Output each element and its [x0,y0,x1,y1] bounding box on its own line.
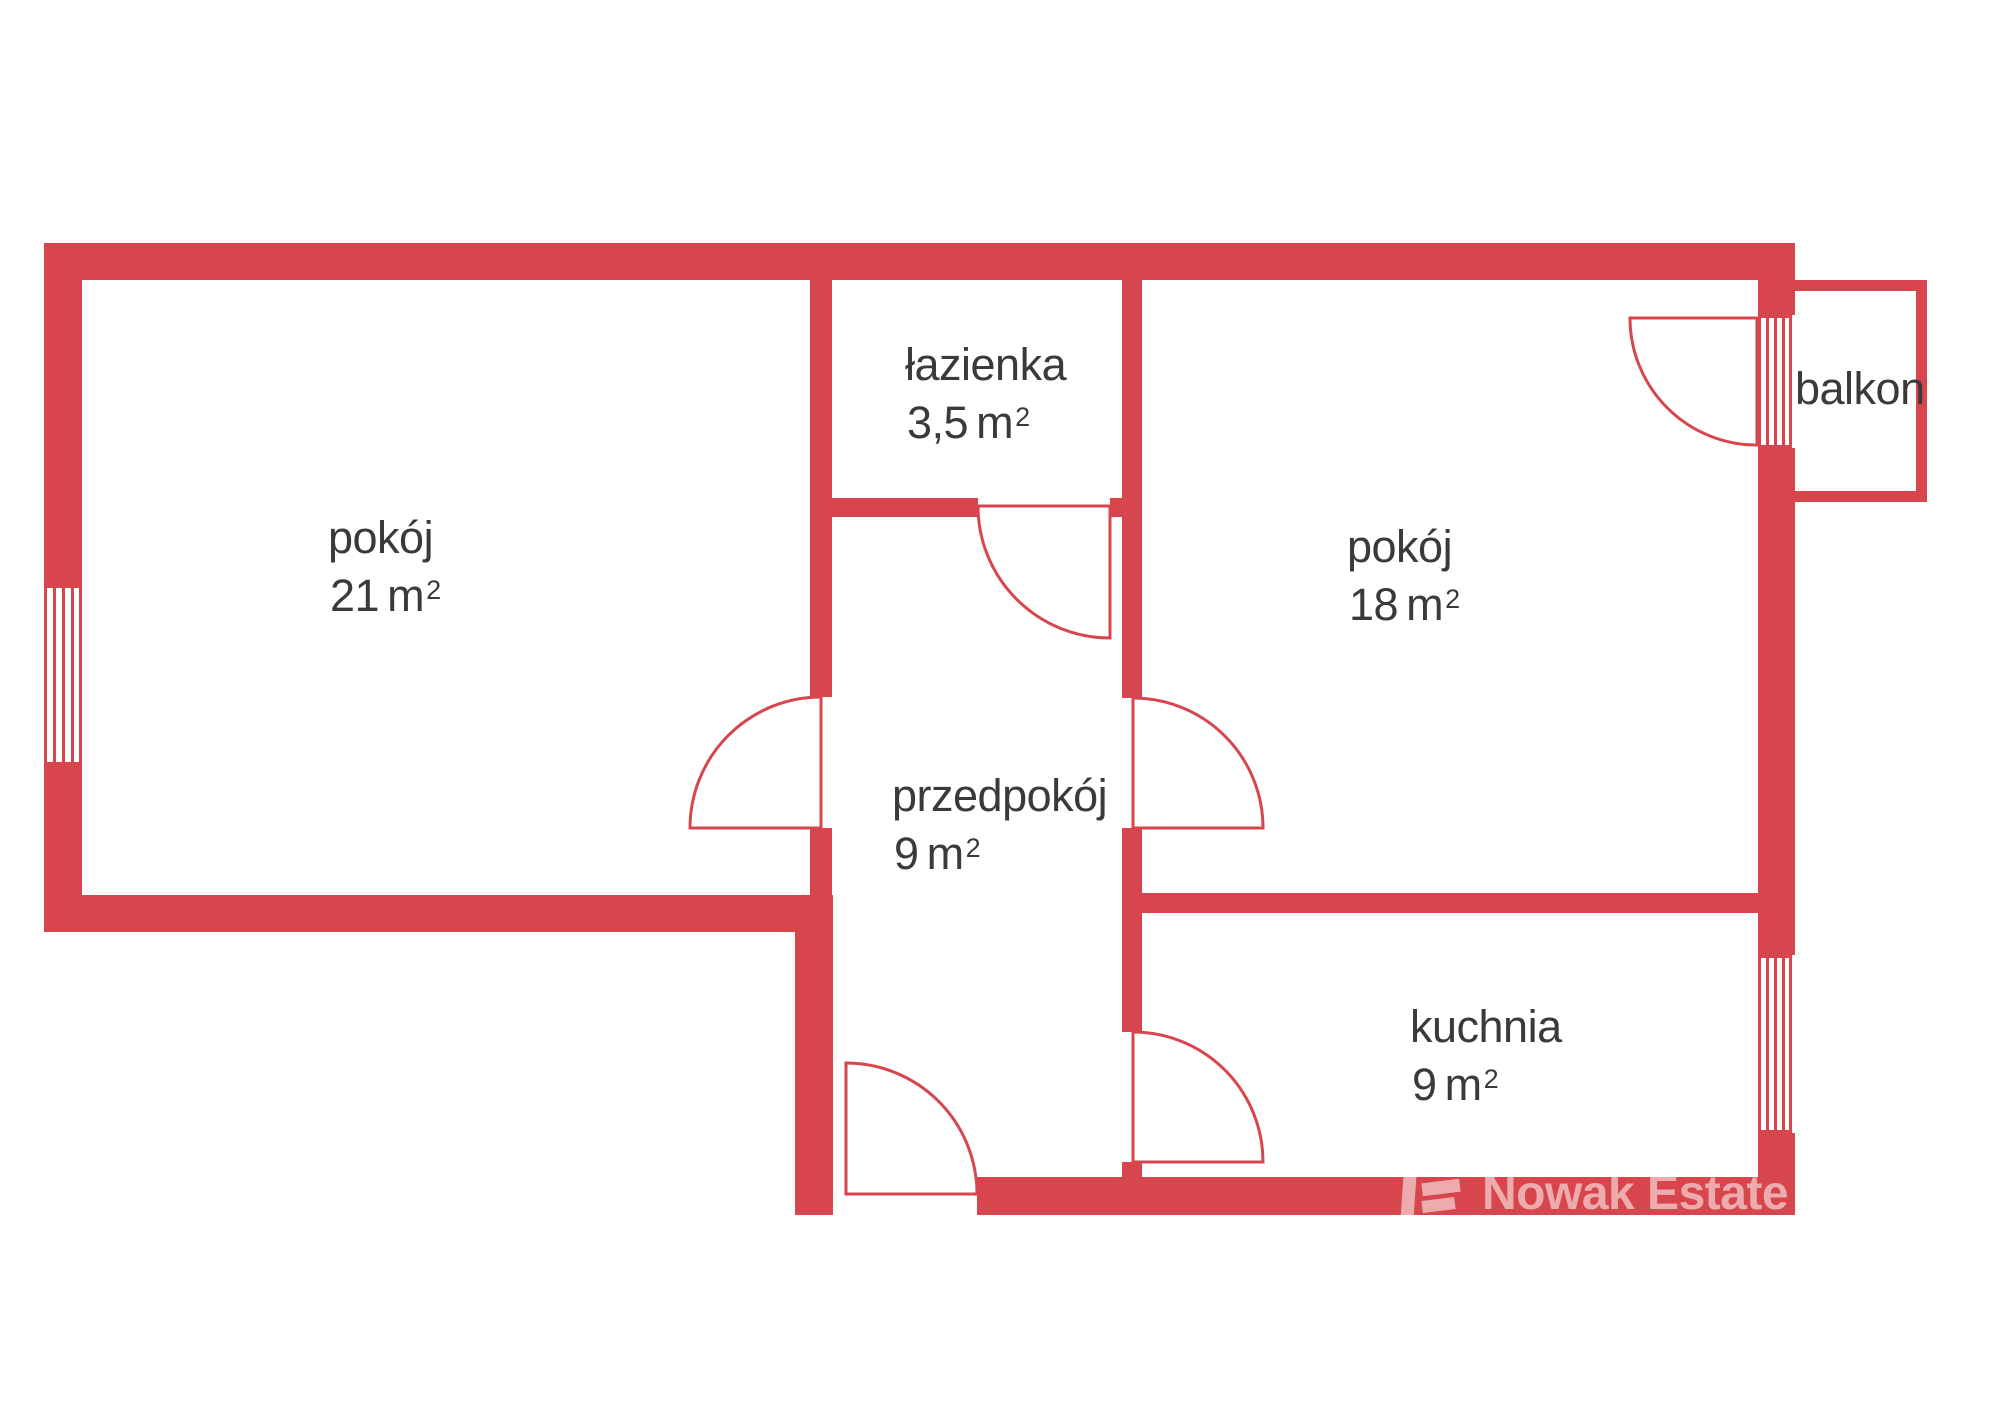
window-kitchen [1758,955,1792,1133]
room-name: kuchnia [1410,998,1562,1056]
window-balcony-door [1758,315,1792,448]
wall-kitchen-top [1142,893,1793,913]
wall-right-upper [1758,243,1795,315]
nowak-estate-logo-icon [1400,1172,1464,1218]
floor-plan: pokój 21m2 łazienka 3,5m2 pokój 18m2 prz… [0,0,2000,1414]
room-label-kuchnia: kuchnia 9m2 [1410,998,1562,1120]
wall-left-upper [44,280,82,585]
door-balcony [1630,318,1757,445]
door-room18 [1133,698,1263,828]
room-area: 3,5m2 [905,394,1066,458]
room-area: 18m2 [1347,576,1460,640]
room-label-lazienka: łazienka 3,5m2 [905,336,1066,458]
doors [690,318,1757,1194]
wall-hall-left-stub [810,828,832,895]
room-name: łazienka [905,336,1066,394]
room-name: pokój [328,509,441,567]
room-label-balkon: balkon [1795,360,1925,418]
wall-bath-bottom-left [832,498,978,517]
room-name: pokój [1347,518,1460,576]
wall-hall-right-upper [1122,280,1142,698]
wall-bath-bottom-right [1110,498,1142,517]
wall-top [44,243,1795,280]
room-label-pokoj-18: pokój 18m2 [1347,518,1460,640]
wall-room21-bottom [44,895,833,932]
door-kitchen [1133,1032,1263,1162]
window-room21 [44,585,82,765]
wall-bath-left-upper [810,280,832,697]
wall-hall-right-middle [1122,828,1142,1032]
room-name: przedpokój [892,767,1107,825]
room-name: balkon [1795,360,1925,418]
watermark: Nowak Estate [1400,1172,1788,1220]
watermark-text: Nowak Estate [1482,1172,1788,1216]
wall-hall-left-exterior [795,895,833,1215]
wall-hall-right-lower [1122,1162,1142,1215]
door-room21 [690,697,821,828]
room-area: 21m2 [328,567,441,631]
wall-right-middle [1758,448,1795,955]
room-label-pokoj-21: pokój 21m2 [328,509,441,631]
door-entrance [846,1063,977,1194]
room-label-przedpokoj: przedpokój 9m2 [892,767,1107,889]
room-area: 9m2 [1410,1056,1562,1120]
room-area: 9m2 [892,825,1107,889]
door-bathroom [978,506,1110,638]
